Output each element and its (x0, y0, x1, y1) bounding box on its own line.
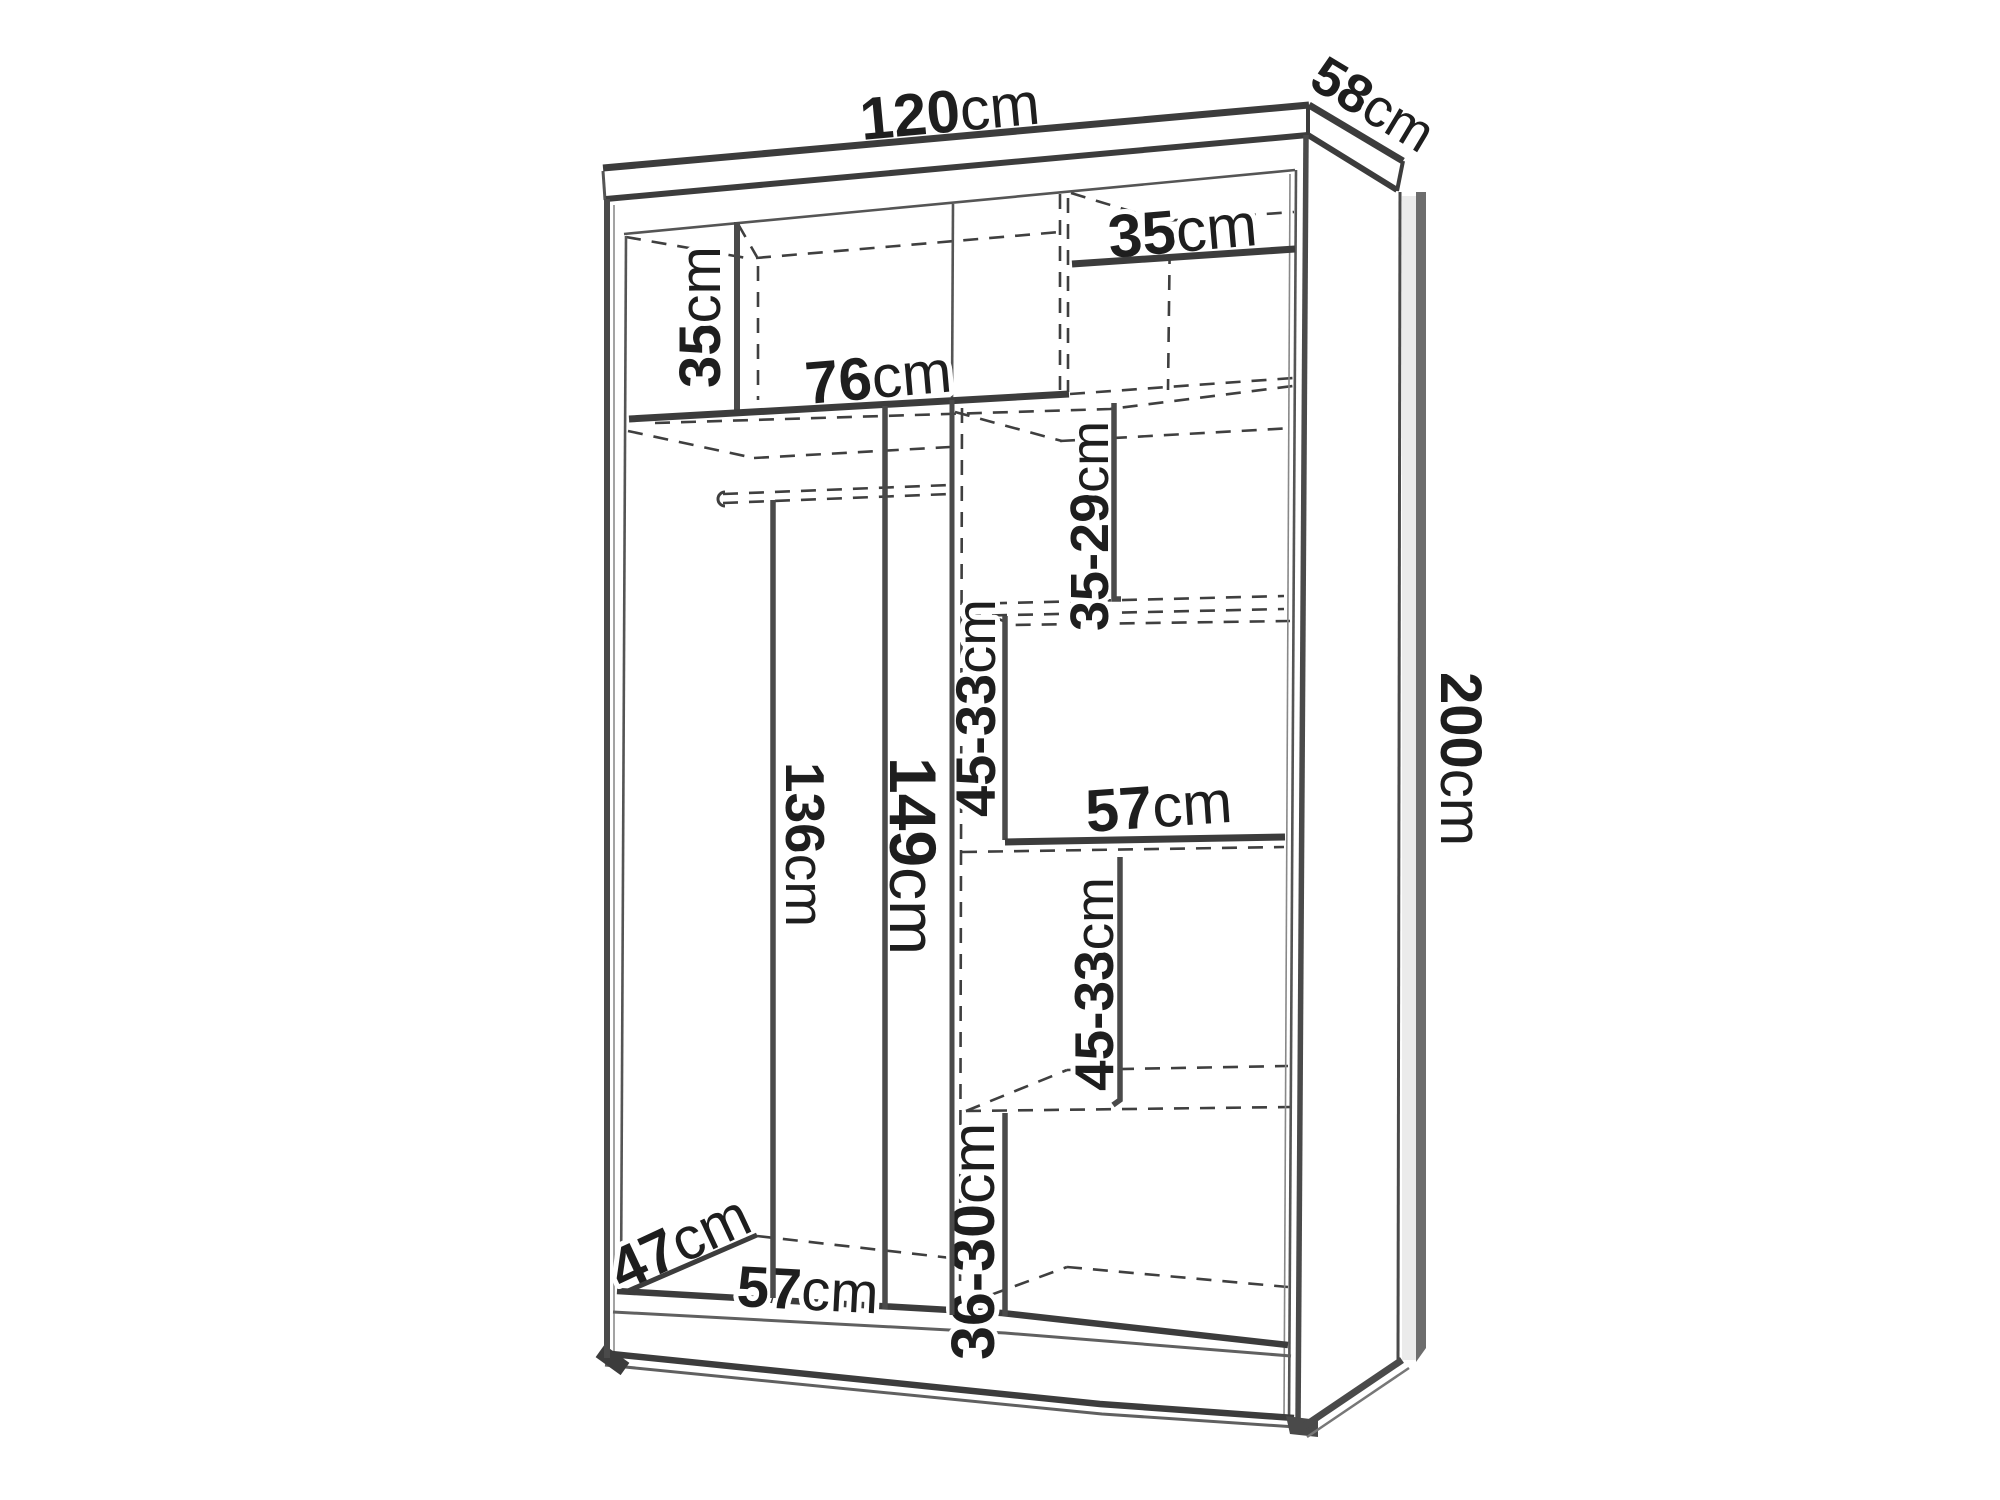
svg-text:36-30cm: 36-30cm (939, 1123, 1007, 1360)
svg-text:200cm: 200cm (1428, 672, 1493, 846)
svg-text:57cm: 57cm (735, 1254, 880, 1326)
svg-text:35cm: 35cm (668, 246, 733, 388)
svg-text:136cm: 136cm (774, 762, 836, 927)
svg-text:45-33cm: 45-33cm (1063, 877, 1125, 1091)
svg-text:57cm: 57cm (1083, 768, 1234, 845)
svg-text:35-29cm: 35-29cm (1060, 421, 1120, 631)
